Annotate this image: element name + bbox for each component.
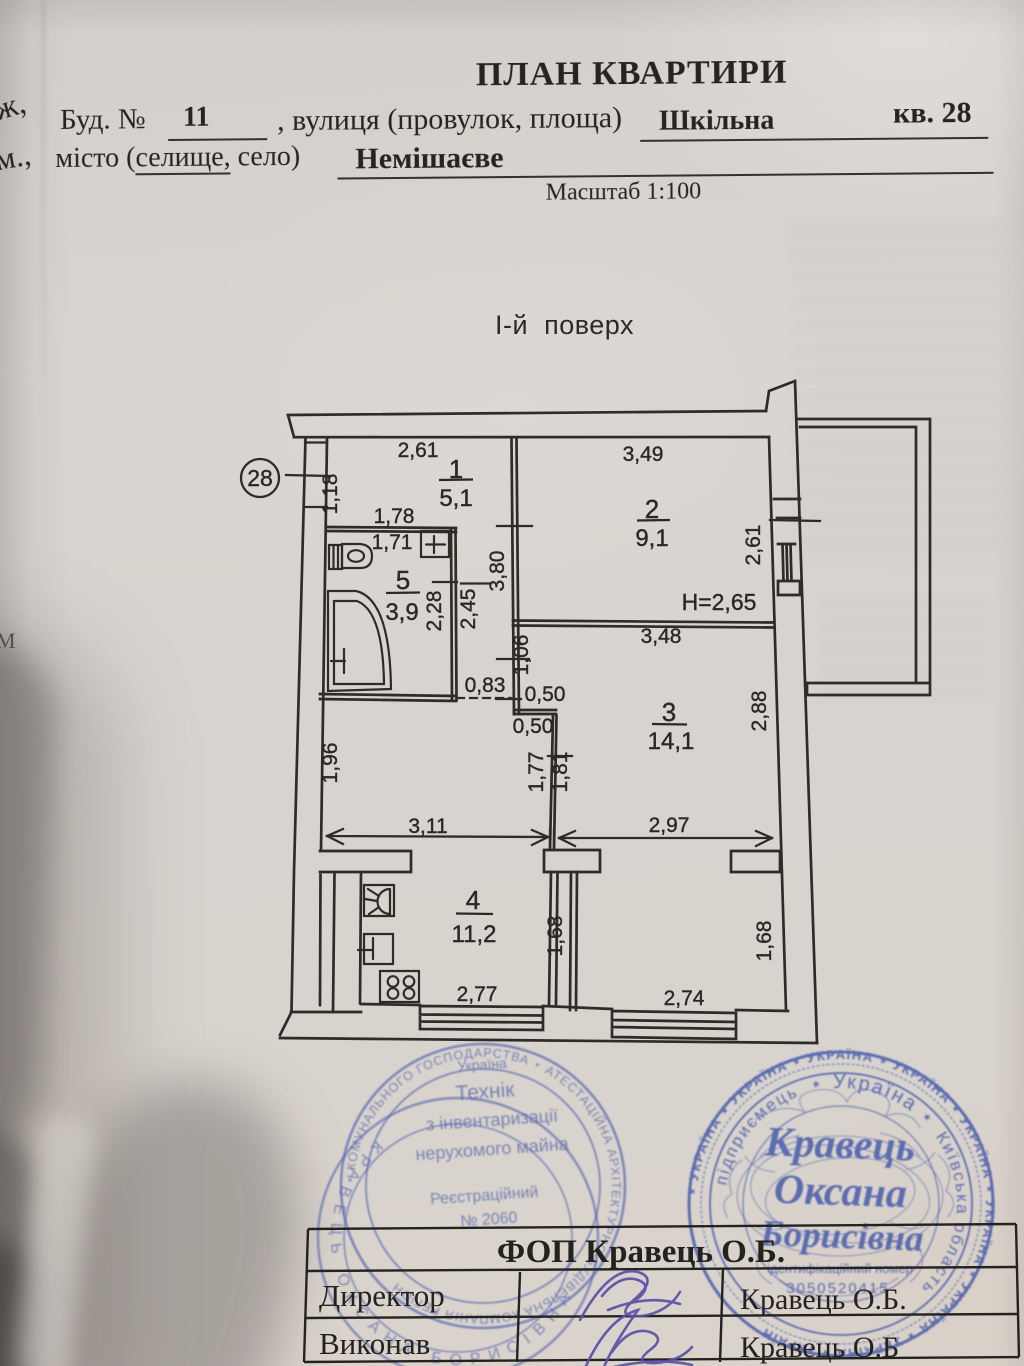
svg-text:Україна: Україна — [457, 1055, 508, 1074]
svg-text:Виконав: Виконав — [319, 1326, 430, 1361]
svg-text:з інвентаризації: з інвентаризації — [425, 1105, 558, 1134]
svg-text:Директор: Директор — [319, 1278, 445, 1313]
svg-text:Оксана: Оксана — [773, 1167, 907, 1218]
svg-text:Кравець О.Б.: Кравець О.Б. — [740, 1283, 907, 1316]
svg-text:Кравець О.Б: Кравець О.Б — [740, 1331, 899, 1364]
svg-text:Кравець: Кравець — [763, 1119, 915, 1170]
svg-text:нерухомого майна: нерухомого майна — [415, 1134, 571, 1165]
svg-text:Реєстраційний: Реєстраційний — [430, 1184, 539, 1209]
svg-text:ФОП Кравець О.Б.: ФОП Кравець О.Б. — [497, 1234, 785, 1270]
